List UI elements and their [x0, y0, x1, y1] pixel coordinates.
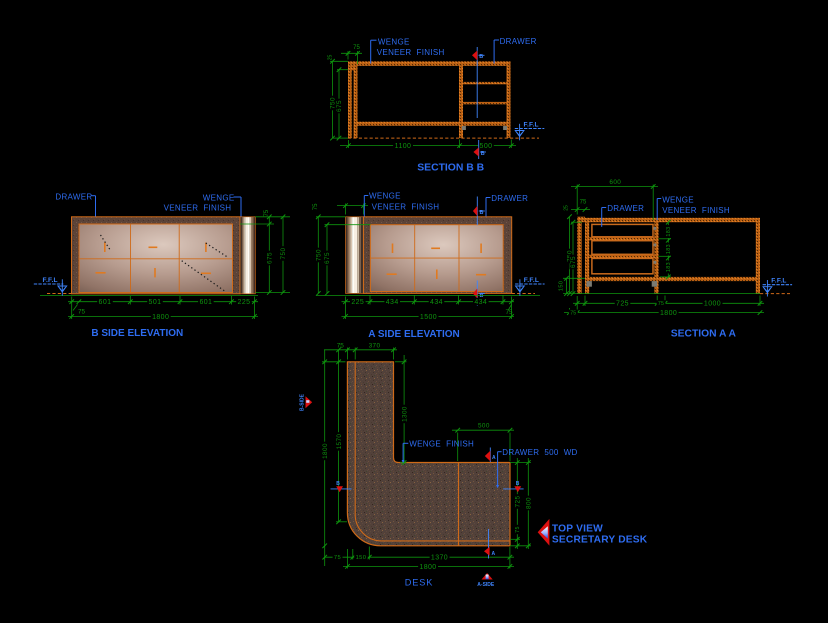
svg-text:75: 75: [334, 555, 341, 561]
svg-text:WENGE: WENGE: [203, 194, 235, 203]
svg-text:DRAWER: DRAWER: [500, 37, 537, 46]
svg-text:1000: 1000: [704, 301, 721, 308]
svg-text:183: 183: [666, 244, 672, 254]
svg-text:1570: 1570: [336, 434, 343, 450]
svg-text:1370: 1370: [431, 555, 448, 562]
svg-text:75: 75: [337, 342, 345, 349]
svg-text:VENEER FINISH: VENEER FINISH: [377, 48, 445, 57]
svg-text:WENGE: WENGE: [378, 38, 410, 47]
svg-text:F.F.L: F.F.L: [43, 277, 58, 284]
svg-text:75: 75: [353, 45, 360, 51]
svg-text:675: 675: [336, 100, 343, 112]
svg-text:SECTION A A: SECTION A A: [671, 329, 737, 340]
svg-text:434: 434: [474, 299, 487, 306]
svg-text:800: 800: [526, 497, 533, 509]
svg-text:F.F.L: F.F.L: [524, 277, 539, 284]
svg-text:DRAWER: DRAWER: [607, 204, 644, 213]
svg-text:25: 25: [564, 205, 570, 211]
svg-text:600: 600: [609, 179, 621, 186]
svg-text:A: A: [492, 551, 496, 557]
svg-text:75: 75: [515, 526, 521, 533]
svg-text:601: 601: [199, 299, 212, 306]
svg-text:750: 750: [280, 248, 287, 260]
svg-text:DESK: DESK: [405, 578, 434, 588]
svg-text:183: 183: [666, 226, 672, 236]
svg-text:B: B: [336, 481, 340, 487]
svg-text:DRAWER: DRAWER: [491, 194, 528, 203]
svg-text:150: 150: [559, 281, 565, 292]
svg-text:75: 75: [313, 203, 319, 210]
svg-text:675: 675: [570, 256, 577, 268]
svg-text:75: 75: [506, 309, 514, 316]
svg-text:225: 225: [351, 299, 364, 306]
svg-text:A: A: [492, 455, 496, 461]
svg-text:VENEER FINISH: VENEER FINISH: [662, 206, 730, 215]
svg-text:TOP VIEW: TOP VIEW: [552, 523, 603, 534]
svg-text:F.F.L: F.F.L: [771, 278, 786, 285]
svg-text:SECRETARY DESK: SECRETARY DESK: [552, 535, 648, 546]
svg-text:VENEER FINISH: VENEER FINISH: [164, 203, 232, 212]
svg-text:75: 75: [78, 309, 86, 316]
svg-text:225: 225: [238, 299, 251, 306]
svg-text:WENGE FINISH: WENGE FINISH: [409, 439, 474, 448]
svg-text:75: 75: [658, 301, 664, 307]
svg-text:675: 675: [324, 252, 331, 264]
svg-text:B-SIDE: B-SIDE: [299, 393, 305, 411]
svg-text:150: 150: [356, 555, 367, 561]
svg-text:WENGE: WENGE: [369, 191, 401, 200]
svg-text:WENGE: WENGE: [662, 195, 694, 204]
svg-text:183: 183: [666, 262, 672, 272]
svg-text:1800: 1800: [660, 310, 677, 317]
svg-text:725: 725: [616, 301, 629, 308]
svg-text:A SIDE ELEVATION: A SIDE ELEVATION: [368, 329, 460, 340]
svg-text:DRAWER 500 WD: DRAWER 500 WD: [502, 448, 577, 457]
svg-text:500: 500: [478, 423, 490, 430]
svg-text:434: 434: [430, 299, 443, 306]
svg-text:501: 501: [149, 299, 162, 306]
svg-text:A-SIDE: A-SIDE: [477, 582, 495, 588]
svg-text:75: 75: [580, 200, 587, 206]
svg-text:675: 675: [267, 252, 274, 264]
svg-text:25: 25: [327, 55, 333, 61]
svg-text:B: B: [516, 481, 520, 487]
svg-text:500: 500: [480, 143, 493, 150]
svg-text:1300: 1300: [401, 406, 408, 422]
svg-text:SECTION B B: SECTION B B: [417, 163, 484, 174]
svg-text:601: 601: [99, 299, 112, 306]
svg-text:1800: 1800: [419, 564, 436, 571]
svg-text:750: 750: [316, 249, 323, 261]
svg-text:725: 725: [515, 496, 522, 508]
svg-text:75: 75: [264, 209, 270, 216]
svg-text:370: 370: [369, 342, 381, 349]
svg-text:1800: 1800: [152, 314, 169, 321]
svg-text:1800: 1800: [322, 443, 329, 459]
svg-text:F.F.L: F.F.L: [524, 121, 539, 128]
svg-text:1100: 1100: [395, 143, 412, 150]
svg-text:75: 75: [570, 310, 576, 316]
svg-text:1500: 1500: [420, 314, 437, 321]
svg-text:B SIDE ELEVATION: B SIDE ELEVATION: [91, 328, 183, 339]
svg-text:DRAWER: DRAWER: [55, 192, 92, 201]
svg-text:434: 434: [386, 299, 399, 306]
svg-text:VENEER FINISH: VENEER FINISH: [372, 203, 440, 212]
